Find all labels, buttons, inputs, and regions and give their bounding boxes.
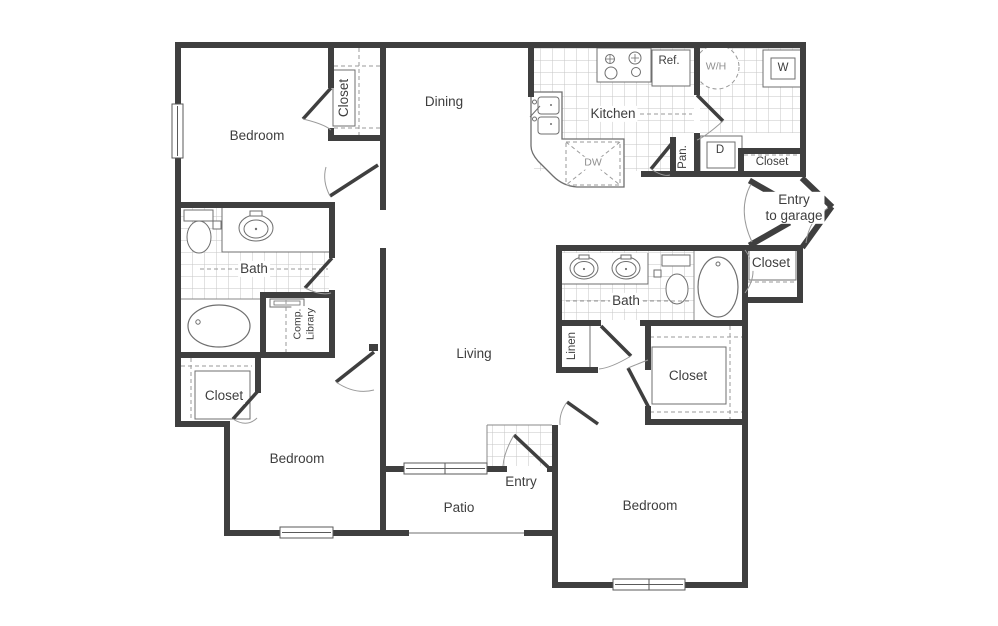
label-pantry: Pan. (677, 143, 691, 171)
label-closet-garage: Closet (750, 255, 792, 271)
label-living: Living (454, 346, 493, 362)
label-closet-utility: Closet (754, 156, 791, 170)
vanity-left (222, 208, 329, 252)
window (172, 104, 183, 158)
label-bedroom-bottom-right: Bedroom (621, 498, 680, 514)
entry-garage-line2: to garage (765, 208, 822, 223)
entry-garage-line1: Entry (778, 192, 810, 207)
label-bedroom-bottom-left: Bedroom (268, 451, 327, 467)
label-kitchen: Kitchen (588, 106, 637, 122)
label-closet-top: Closet (336, 77, 352, 119)
label-closet-bottom-right: Closet (667, 368, 709, 384)
label-entry-to-garage: Entry to garage (763, 192, 824, 224)
bathtub-right-icon (698, 257, 738, 317)
floor-plan-drawing (0, 0, 998, 626)
bathtub-left-icon (188, 305, 250, 347)
label-linen: Linen (566, 330, 580, 362)
label-comp-library: Comp. Library (291, 306, 316, 342)
label-refrigerator: Ref. (656, 55, 681, 69)
label-washer: W (776, 62, 791, 76)
label-bath-left: Bath (238, 261, 270, 277)
comp-library-line1: Comp. (291, 309, 303, 340)
label-dishwasher: DW (582, 157, 604, 170)
floor-plan: Bedroom Closet Dining Kitchen Ref. W/H W… (0, 0, 998, 626)
label-entry: Entry (503, 474, 539, 490)
label-dryer: D (714, 144, 726, 158)
stove-icon (597, 48, 651, 82)
label-bath-right: Bath (610, 293, 642, 309)
label-water-heater: W/H (704, 61, 728, 74)
window (613, 579, 685, 590)
label-dining: Dining (423, 94, 465, 110)
label-closet-left: Closet (203, 388, 245, 404)
label-bedroom-top-left: Bedroom (228, 128, 287, 144)
comp-library-line2: Library (304, 308, 316, 340)
window (280, 527, 333, 538)
label-patio: Patio (442, 500, 477, 516)
vanity-right (562, 253, 648, 284)
sliding-door (404, 463, 487, 474)
